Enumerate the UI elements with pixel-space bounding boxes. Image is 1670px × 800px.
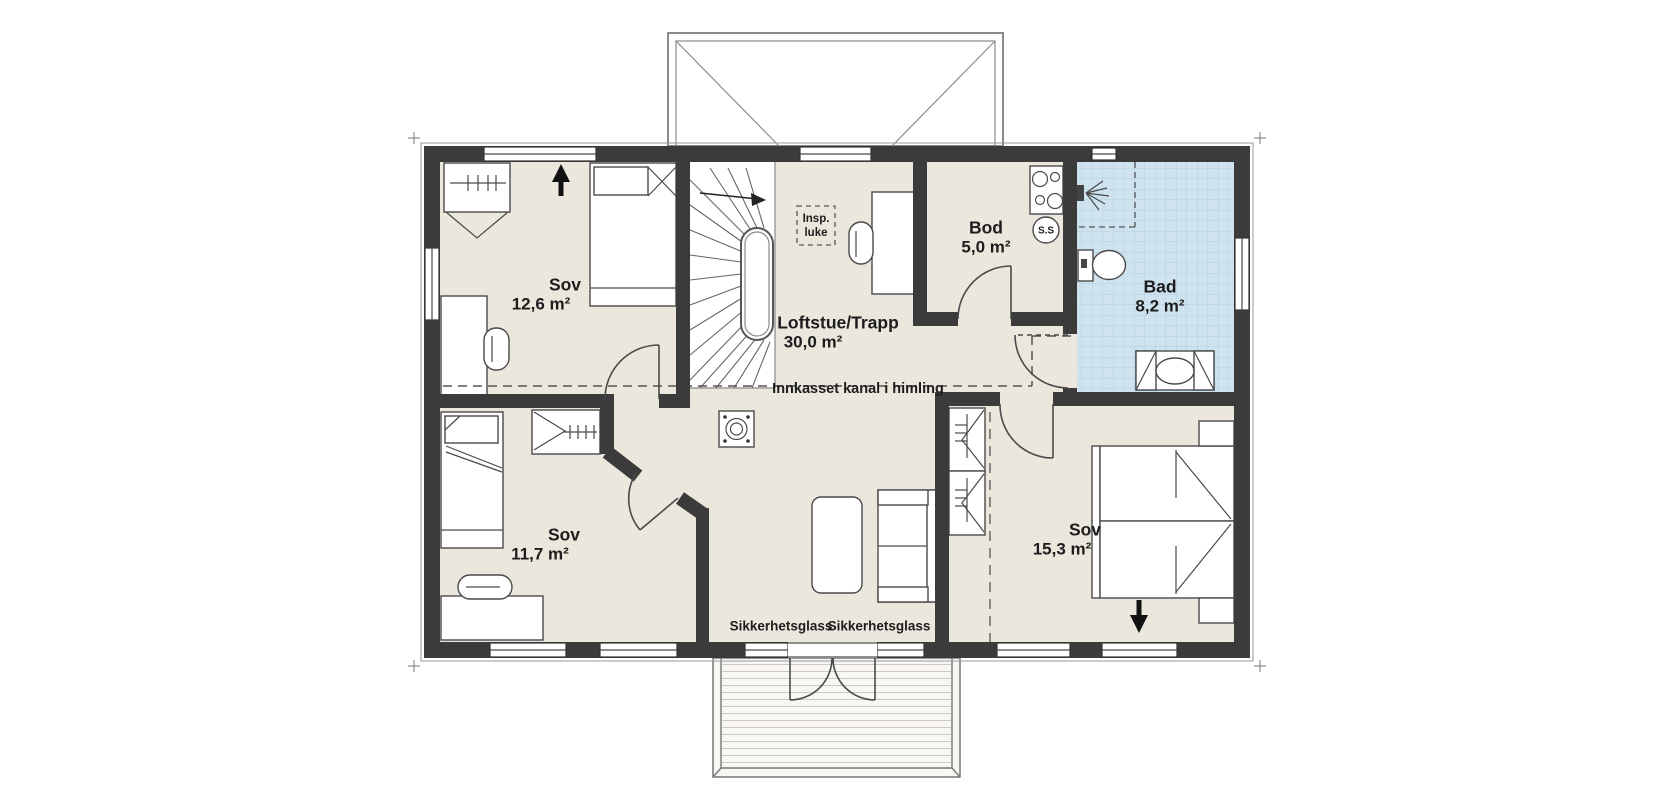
svg-text:S.S: S.S bbox=[1038, 226, 1054, 237]
room-area-sov3: 15,3 m² bbox=[1033, 539, 1092, 558]
window bbox=[800, 147, 871, 161]
bod-fixtures: S.S bbox=[1030, 166, 1063, 243]
floor-plan: S.S bbox=[0, 0, 1670, 800]
room-area-bad: 8,2 m² bbox=[1135, 296, 1184, 315]
window bbox=[1235, 238, 1249, 310]
wardrobe-icon bbox=[949, 408, 985, 471]
duct-label: Innkasset kanal i himling bbox=[772, 381, 944, 397]
window bbox=[425, 248, 439, 320]
svg-text:Insp.: Insp. bbox=[803, 213, 830, 225]
window-safety-glass bbox=[877, 643, 924, 657]
window bbox=[600, 643, 677, 657]
window-safety-glass bbox=[745, 643, 788, 657]
room-label-bod: Bod bbox=[969, 218, 1003, 238]
vent-window bbox=[1092, 148, 1116, 160]
stove-icon bbox=[1030, 166, 1063, 214]
wardrobe-icon bbox=[532, 410, 600, 454]
window bbox=[484, 147, 596, 161]
room-area-bod: 5,0 m² bbox=[961, 237, 1010, 256]
bed-icon bbox=[441, 412, 503, 548]
room-label-sov2: Sov bbox=[548, 525, 580, 545]
room-label-loftstue: Loftstue/Trapp bbox=[777, 313, 899, 333]
room-label-bad: Bad bbox=[1143, 277, 1176, 297]
balcony-door-threshold bbox=[788, 642, 877, 658]
room-label-sov3: Sov bbox=[1069, 520, 1101, 540]
roof-dormer-outline bbox=[668, 33, 1003, 146]
room-label-sov1: Sov bbox=[549, 275, 581, 295]
room-area-loftstue: 30,0 m² bbox=[784, 332, 843, 351]
safety-glass-label-right: Sikkerhetsglass bbox=[828, 619, 931, 634]
window bbox=[997, 643, 1070, 657]
coffee-table-icon bbox=[812, 497, 862, 593]
window bbox=[490, 643, 566, 657]
room-area-sov1: 12,6 m² bbox=[512, 294, 571, 313]
svg-text:luke: luke bbox=[804, 227, 827, 239]
stair-handrail bbox=[741, 228, 773, 340]
double-bed-icon bbox=[1092, 421, 1234, 623]
room-area-sov2: 11,7 m² bbox=[511, 544, 569, 563]
floor-plan-drawing: S.S bbox=[0, 0, 1670, 800]
wardrobe-icon bbox=[949, 471, 985, 535]
sink-vanity-icon bbox=[1136, 351, 1214, 390]
toilet-icon bbox=[1078, 250, 1126, 281]
bed-icon bbox=[590, 163, 676, 306]
nightstand-icon bbox=[1199, 598, 1234, 623]
sofa-icon bbox=[878, 490, 938, 602]
chimney-icon bbox=[719, 411, 754, 447]
nightstand-icon bbox=[1199, 421, 1234, 446]
safety-glass-label-left: Sikkerhetsglass bbox=[730, 619, 833, 634]
ss-marker: S.S bbox=[1033, 217, 1059, 243]
window bbox=[1102, 643, 1177, 657]
